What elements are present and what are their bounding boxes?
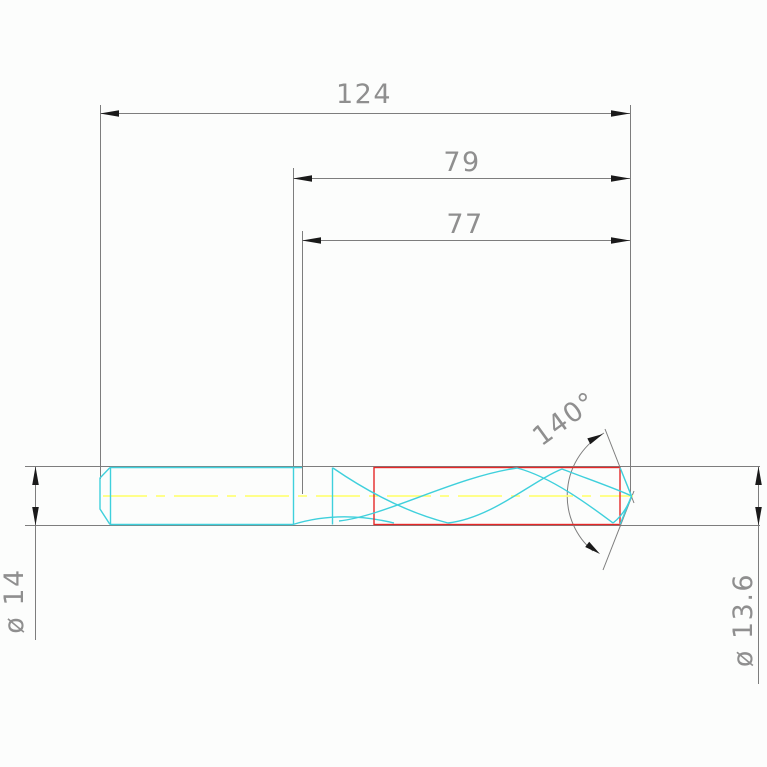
arrowhead-angle-top xyxy=(587,434,603,444)
dimension-intermediate-length: 79 xyxy=(293,147,630,182)
dimension-shank-diameter: ø 14 xyxy=(0,467,39,641)
arrowhead-d136-down xyxy=(755,507,762,526)
arrowhead-d14-down xyxy=(32,507,39,526)
dimension-label-d14: ø 14 xyxy=(0,568,30,633)
arrowhead-124-right xyxy=(611,110,630,117)
drawing-canvas: 124 79 77 ø 14 ø 13.6 140° xyxy=(0,0,767,767)
arrowhead-d136-up xyxy=(755,467,762,486)
dimension-point-diameter: ø 13.6 xyxy=(728,467,762,685)
flute-lip-upper xyxy=(562,469,632,496)
dimension-flute-length: 77 xyxy=(302,209,630,244)
dimension-label-79: 79 xyxy=(443,147,480,178)
dimension-label-124: 124 xyxy=(336,79,392,110)
arrowhead-79-right xyxy=(611,175,630,182)
dimension-total-length: 124 xyxy=(100,79,630,117)
technical-drawing-svg: 124 79 77 ø 14 ø 13.6 140° xyxy=(0,0,767,767)
arrowhead-77-right xyxy=(611,237,630,244)
extension-lines xyxy=(25,105,760,526)
arrowhead-77-left xyxy=(302,237,321,244)
flute-spiral-2 xyxy=(339,468,517,521)
arrowhead-124-left xyxy=(100,110,119,117)
dimension-label-d136: ø 13.6 xyxy=(728,573,759,667)
drill-body xyxy=(100,468,633,525)
arrowhead-angle-bottom xyxy=(585,542,600,554)
angle-dimension-arc xyxy=(567,433,604,551)
arrowhead-d14-up xyxy=(32,467,39,486)
dimension-label-77: 77 xyxy=(446,209,483,240)
arrowhead-79-left xyxy=(293,175,312,182)
